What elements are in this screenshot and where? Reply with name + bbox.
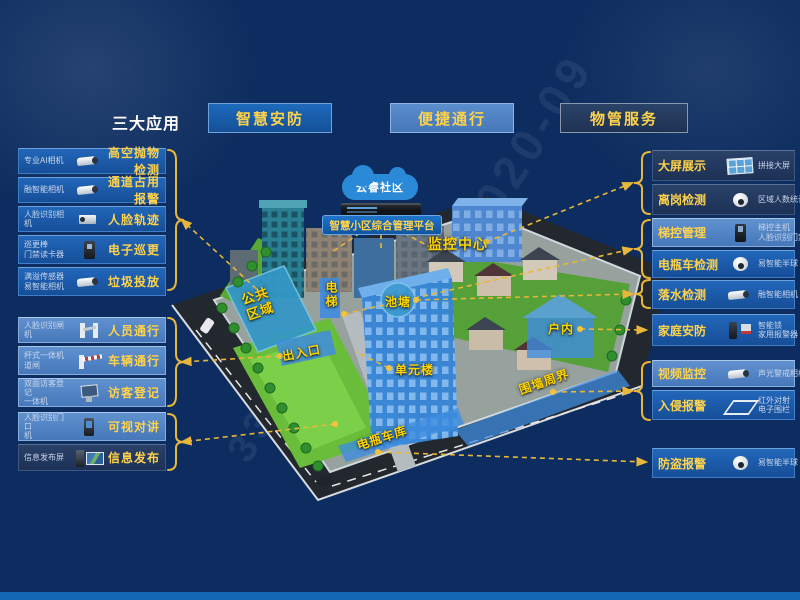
- feature-label: 电子巡更: [107, 241, 160, 258]
- lock-siren-icon: [725, 320, 755, 340]
- feature-label: 离岗检测: [658, 191, 722, 208]
- device-label: 梯控主机 人脸识别门禁: [758, 223, 800, 241]
- feature-label: 访客登记: [107, 384, 160, 401]
- app-button-smart-security[interactable]: 智慧安防: [208, 103, 332, 133]
- device-label: 人脸识别相机: [24, 210, 71, 228]
- bullet-camera-icon: [74, 151, 104, 171]
- door-intercom-icon: [74, 417, 104, 437]
- dome-camera-icon: [725, 254, 755, 274]
- item-channel-occupancy-alarm[interactable]: 融智能相机 通道占用报警: [18, 177, 166, 203]
- item-vehicle-access[interactable]: 杆式一体机 道闸 车辆通行: [18, 346, 166, 375]
- feature-label: 大屏展示: [658, 157, 722, 174]
- device-label: 双面访客登记 一体机: [24, 379, 71, 407]
- elevator-zone: [320, 278, 340, 318]
- dome-camera-icon: [725, 190, 755, 210]
- feature-label: 可视对讲: [107, 418, 160, 435]
- item-home-security[interactable]: 家庭安防 智能锁 家用报警器: [652, 314, 795, 346]
- feature-label: 防盗报警: [658, 455, 722, 472]
- device-label: 易智能半球: [758, 259, 800, 268]
- smart-community-diagram: { "palette": { "background": "#0d2d60", …: [0, 0, 800, 600]
- bullet-camera-icon: [725, 364, 755, 384]
- device-label: 融智能相机: [24, 185, 71, 194]
- device-label: 巡更棒 门禁读卡器: [24, 240, 71, 258]
- app-button-convenient-access[interactable]: 便捷通行: [390, 103, 514, 133]
- device-label: 人脸识别门口 机: [24, 413, 71, 441]
- feature-label: 人员通行: [107, 322, 160, 339]
- device-label: 专业AI相机: [24, 156, 71, 165]
- item-elevator-control[interactable]: 梯控管理 梯控主机 人脸识别门禁: [652, 218, 795, 247]
- elevator-panel-icon: [725, 223, 755, 243]
- card-reader-icon: [74, 240, 104, 260]
- bullet-camera-icon: [74, 180, 104, 200]
- device-label: 满溢传感器 易智能相机: [24, 272, 71, 290]
- info-screen-icon: [74, 448, 104, 468]
- footer-bar: [0, 592, 800, 600]
- registration-kiosk-icon: [74, 383, 104, 403]
- device-label: 智能锁 家用报警器: [758, 321, 800, 339]
- device-label: 声光警戒相机: [758, 369, 800, 378]
- device-label: 融智能相机: [758, 290, 800, 299]
- barrier-gate-icon: [74, 351, 104, 371]
- app-button-property-service[interactable]: 物管服务: [560, 103, 688, 133]
- device-label: 拼接大屏: [758, 161, 800, 170]
- feature-label: 梯控管理: [658, 224, 722, 241]
- device-label: 杆式一体机 道闸: [24, 351, 71, 369]
- cloud-community-badge: 云睿社区: [342, 174, 418, 200]
- bullet-camera-icon: [74, 272, 104, 292]
- turnstile-icon: [74, 320, 104, 340]
- bullet-camera-icon: [725, 285, 755, 305]
- pond-zone: [381, 283, 415, 317]
- item-ebike-detection[interactable]: 电瓶车检测 易智能半球: [652, 250, 795, 278]
- feature-label: 垃圾投放: [107, 273, 160, 290]
- device-label: 信息发布屏: [24, 453, 71, 462]
- video-wall-icon: [725, 156, 755, 176]
- item-drowning-detection[interactable]: 落水检测 融智能相机: [652, 280, 795, 309]
- feature-label: 车辆通行: [107, 352, 160, 369]
- item-video-intercom[interactable]: 人脸识别门口 机 可视对讲: [18, 412, 166, 441]
- page-title: 三大应用: [112, 110, 180, 134]
- feature-label: 信息发布: [107, 449, 160, 466]
- feature-label: 通道占用报警: [107, 173, 160, 207]
- device-label: 区域人数统计: [758, 195, 800, 204]
- item-pedestrian-access[interactable]: 人脸识别闸机 人员通行: [18, 317, 166, 343]
- item-info-publish[interactable]: 信息发布屏 信息发布: [18, 444, 166, 471]
- item-electronic-patrol[interactable]: 巡更棒 门禁读卡器 电子巡更: [18, 235, 166, 264]
- feature-label: 入侵报警: [658, 397, 722, 414]
- feature-label: 落水检测: [658, 286, 722, 303]
- dome-camera-icon: [725, 453, 755, 473]
- device-label: 红外对射 电子围栏: [758, 396, 800, 414]
- platform-pill: 智慧小区综合管理平台: [322, 215, 442, 235]
- monitor-center-building: [452, 198, 528, 206]
- device-label: 人脸识别闸机: [24, 321, 71, 339]
- device-label: 易智能半球: [758, 458, 800, 467]
- item-face-track[interactable]: 人脸识别相机 人脸轨迹: [18, 206, 166, 232]
- infrared-fence-icon: [725, 395, 755, 415]
- cloud-label: 云睿社区: [356, 179, 404, 195]
- feature-label: 电瓶车检测: [658, 256, 722, 273]
- box-camera-icon: [74, 209, 104, 229]
- item-intrusion-alarm[interactable]: 入侵报警 红外对射 电子围栏: [652, 390, 795, 420]
- item-garbage-disposal[interactable]: 满溢传感器 易智能相机 垃圾投放: [18, 267, 166, 296]
- item-video-wall-display[interactable]: 大屏展示 拼接大屏: [652, 150, 795, 181]
- item-off-duty-detection[interactable]: 离岗检测 区域人数统计: [652, 184, 795, 215]
- item-video-surveillance[interactable]: 视频监控 声光警戒相机: [652, 360, 795, 387]
- item-visitor-registration[interactable]: 双面访客登记 一体机 访客登记: [18, 378, 166, 407]
- feature-label: 家庭安防: [658, 322, 722, 339]
- feature-label: 人脸轨迹: [107, 211, 160, 228]
- item-burglar-alarm[interactable]: 防盗报警 易智能半球: [652, 448, 795, 478]
- feature-label: 视频监控: [658, 365, 722, 382]
- item-high-altitude-throwing-detection[interactable]: 专业AI相机 高空抛物检测: [18, 148, 166, 174]
